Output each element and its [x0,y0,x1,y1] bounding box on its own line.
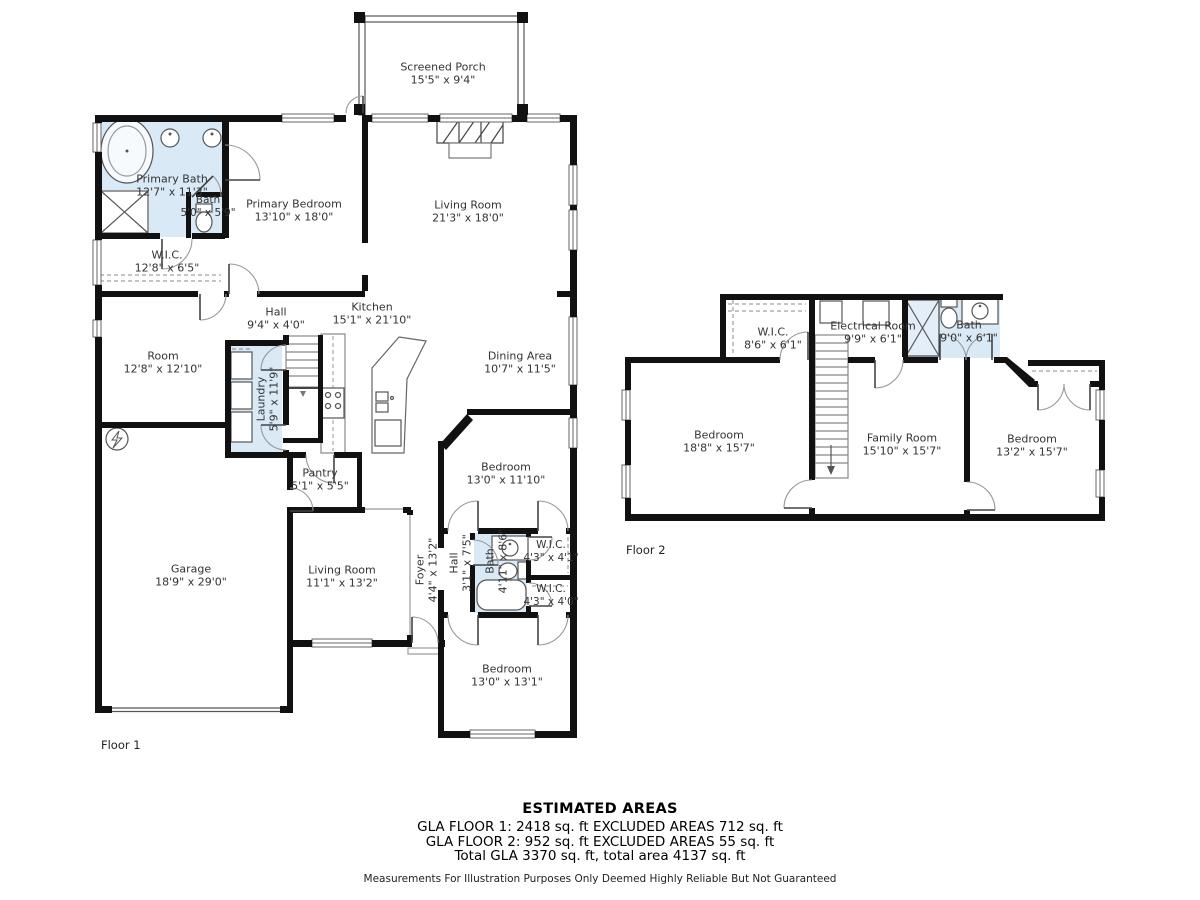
room-label-bedroom-f2-left: Bedroom18'8" x 15'7" [683,429,755,456]
room-label-bedroom-f2-right: Bedroom13'2" x 15'7" [996,433,1068,460]
room-label-electrical-room: Electrical Room9'9" x 6'1" [830,320,915,347]
floor1-caption: Floor 1 [101,738,141,752]
room-label-dining-area: Dining Area10'7" x 11'5" [484,350,556,377]
room-label-bedroom-1: Bedroom13'0" x 11'10" [467,461,546,488]
room-label-wic-primary: W.I.C.12'8" x 6'5" [135,249,200,276]
floorplan-page: Screened Porch15'5" x 9'4" Primary Bath1… [0,0,1200,900]
summary-title: ESTIMATED AREAS [0,801,1200,817]
room-label-wic-1: W.I.C.4'3" x 4'1" [523,539,578,565]
room-label-garage: Garage18'9" x 29'0" [155,563,227,590]
room-label-bath-primary: Bath5'0" x 5'9" [180,194,235,220]
room-label-foyer: Foyer4'4" x 13'2" [414,538,441,603]
room-label-screened-porch: Screened Porch15'5" x 9'4" [400,61,485,88]
room-label-room: Room12'8" x 12'10" [124,350,203,377]
summary-disclaimer: Measurements For Illustration Purposes O… [0,873,1200,885]
room-label-family-room: Family Room15'10" x 15'7" [863,432,942,459]
summary-line-1: GLA FLOOR 1: 2418 sq. ft EXCLUDED AREAS … [0,820,1200,835]
room-label-kitchen: Kitchen15'1" x 21'10" [333,301,412,328]
summary-line-2: GLA FLOOR 2: 952 sq. ft EXCLUDED AREAS 5… [0,835,1200,850]
room-label-bath-f2: Bath9'0" x 6'1" [940,319,998,346]
estimated-areas-summary: ESTIMATED AREAS GLA FLOOR 1: 2418 sq. ft… [0,801,1200,885]
room-label-primary-bedroom: Primary Bedroom13'10" x 18'0" [246,198,342,225]
room-label-wic-f2: W.I.C.8'6" x 6'1" [744,326,802,353]
room-label-hall-upper: Hall9'4" x 4'0" [247,306,305,333]
room-label-wic-2: W.I.C.4'3" x 4'0" [523,583,578,609]
room-label-hall-2: Hall3'1" x 7'5" [448,534,475,592]
room-label-pantry: Pantry5'1" x 5'5" [291,467,349,494]
room-label-living-room-2: Living Room11'1" x 13'2" [306,564,378,591]
floor2-caption: Floor 2 [626,543,666,557]
room-label-living-room: Living Room21'3" x 18'0" [432,199,504,226]
summary-line-3: Total GLA 3370 sq. ft, total area 4137 s… [0,849,1200,864]
room-label-bath-2: Bath4'11" x 8'6" [484,529,511,594]
room-label-laundry: Laundry5'9" x 11'9" [255,367,282,432]
room-label-bedroom-2: Bedroom13'0" x 13'1" [471,663,543,690]
